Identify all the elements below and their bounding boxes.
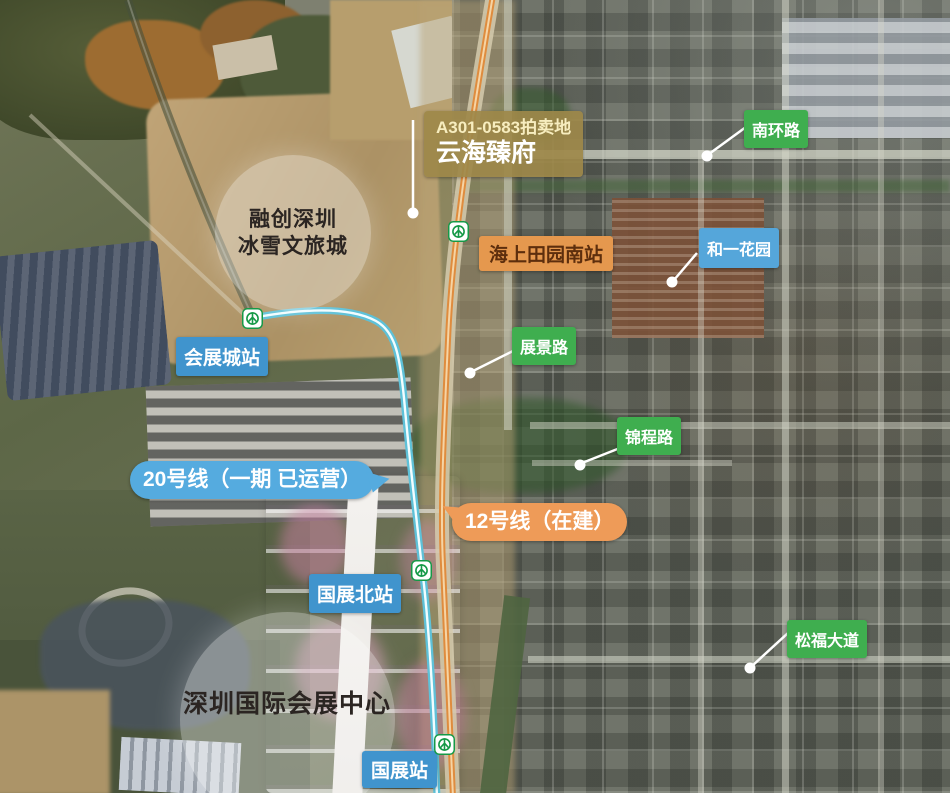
- dot-jincheng-road: [575, 460, 586, 471]
- guozhan-north-station-badge: 国展北站: [309, 574, 401, 613]
- dot-zhanjing-road: [465, 368, 476, 379]
- haishang-tianyuan-south-station-badge: 海上田园南站: [479, 236, 613, 271]
- metro-station-icon: [448, 221, 469, 242]
- auction-plot-code: A301-0583拍卖地: [436, 117, 571, 138]
- huizhancheng-station-badge: 会展城站: [176, 337, 268, 376]
- convention-center-title: 深圳国际会展中心: [183, 684, 391, 720]
- satellite-map: 融创深圳 冰雪文旅城 深圳国际会展中心 A301-0583拍卖地 云海臻府 海上…: [0, 0, 950, 793]
- line-12-badge: 12号线（在建）: [452, 503, 627, 541]
- line-20-badge: 20号线（一期 已运营）: [130, 461, 374, 499]
- jincheng-road-badge: 锦程路: [617, 417, 681, 455]
- sunac-label: 融创深圳 冰雪文旅城: [238, 206, 348, 261]
- heyi-garden-badge: 和一花园: [699, 228, 779, 268]
- line-12-label: 12号线（在建）: [465, 510, 614, 533]
- line-20-label: 20号线（一期 已运营）: [143, 468, 361, 491]
- pointer-lines: [413, 120, 788, 666]
- pointer-jincheng-road: [582, 448, 620, 463]
- pointer-songfu-avenue: [752, 633, 788, 666]
- dot-heyi-garden: [667, 277, 678, 288]
- metro-station-icon: [242, 308, 263, 329]
- songfu-avenue-badge: 松福大道: [787, 620, 867, 658]
- dot-auction-plot: [408, 208, 419, 219]
- sunac-label-line2: 冰雪文旅城: [238, 233, 348, 260]
- zhanjing-road-badge: 展景路: [512, 327, 576, 365]
- dot-songfu-avenue: [745, 663, 756, 674]
- guozhan-station-badge: 国展站: [362, 751, 437, 788]
- sunac-label-line1: 融创深圳: [238, 206, 348, 233]
- dot-nanhuan-road: [702, 151, 713, 162]
- metro-station-icon: [434, 734, 455, 755]
- auction-plot-name: 云海臻府: [436, 138, 571, 169]
- pointer-nanhuan-road: [709, 127, 746, 154]
- nanhuan-road-badge: 南环路: [744, 110, 808, 148]
- sunac-area-highlight: 融创深圳 冰雪文旅城: [215, 155, 371, 311]
- pointer-heyi-garden: [674, 253, 697, 280]
- pointer-zhanjing-road: [473, 351, 513, 371]
- metro-station-icon: [411, 560, 432, 581]
- auction-plot-badge: A301-0583拍卖地 云海臻府: [424, 111, 583, 177]
